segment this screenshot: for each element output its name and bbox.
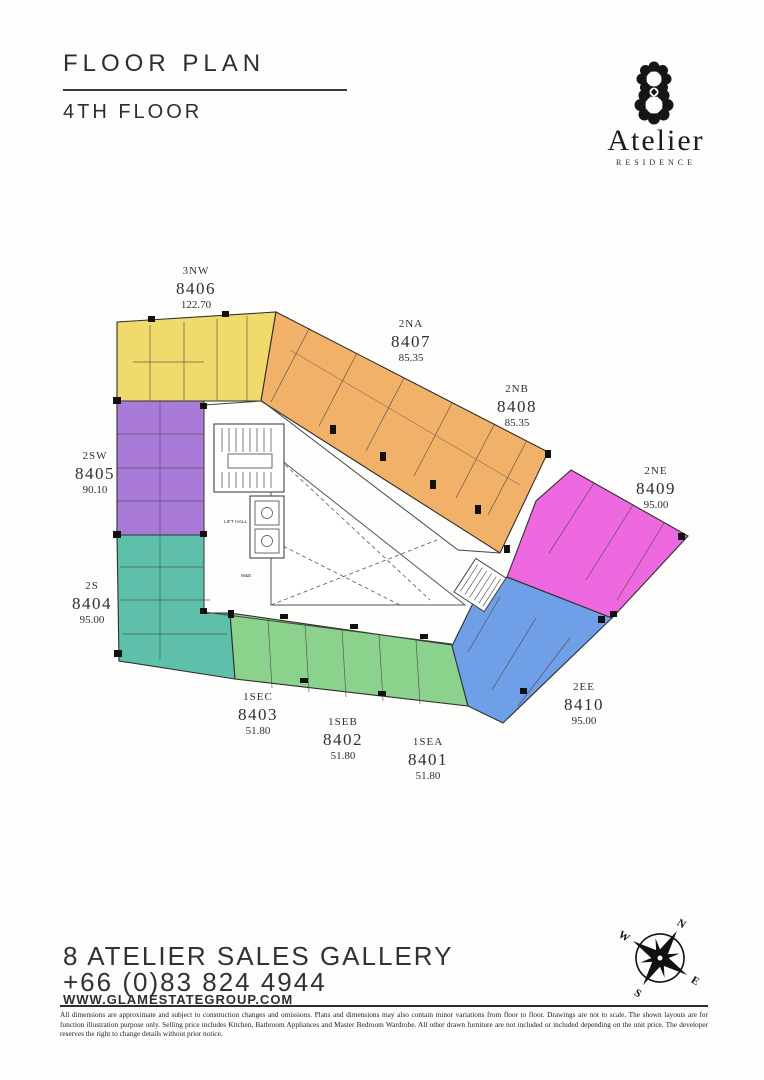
unit-area: 85.35 bbox=[497, 417, 537, 430]
unit-number: 8405 bbox=[75, 464, 115, 484]
unit-area: 95.00 bbox=[72, 614, 112, 627]
unit-number: 8408 bbox=[497, 397, 537, 417]
unit-label-8402: 1SEB 8402 51.80 bbox=[323, 716, 363, 763]
compass-n-label: N bbox=[675, 917, 688, 931]
unit-number: 8402 bbox=[323, 730, 363, 750]
unit-code: 2NB bbox=[497, 383, 537, 396]
floor-plan-page: FLOOR PLAN 4TH FLOOR Atelier RESIDENCE bbox=[0, 0, 764, 1080]
unit-area: 122.70 bbox=[176, 299, 216, 312]
unit-number: 8401 bbox=[408, 750, 448, 770]
footer-divider bbox=[60, 1005, 708, 1007]
unit-number: 8409 bbox=[636, 479, 676, 499]
unit-area: 51.80 bbox=[238, 725, 278, 738]
unit-label-8409: 2NE 8409 95.00 bbox=[636, 465, 676, 512]
unit-label-8403: 1SEC 8403 51.80 bbox=[238, 691, 278, 738]
mne-label: M&E bbox=[241, 573, 251, 579]
unit-area: 51.80 bbox=[323, 750, 363, 763]
stairwell bbox=[214, 424, 284, 492]
zone-3nw bbox=[117, 312, 276, 401]
unit-number: 8404 bbox=[72, 594, 112, 614]
compass-w-label: W bbox=[616, 929, 632, 945]
unit-area: 85.35 bbox=[391, 352, 431, 365]
floor-plan-drawing: LIFT HALL M&E bbox=[0, 0, 764, 1080]
compass-rose-icon: N E S W bbox=[594, 894, 723, 1023]
unit-number: 8410 bbox=[564, 695, 604, 715]
unit-code: 2NE bbox=[636, 465, 676, 478]
unit-area: 51.80 bbox=[408, 770, 448, 783]
unit-number: 8406 bbox=[176, 279, 216, 299]
unit-number: 8407 bbox=[391, 332, 431, 352]
zone-2s bbox=[117, 535, 235, 679]
unit-number: 8403 bbox=[238, 705, 278, 725]
unit-code: 1SEA bbox=[408, 736, 448, 749]
unit-label-8406: 3NW 8406 122.70 bbox=[176, 265, 216, 312]
disclaimer-text: All dimensions are approximate and subje… bbox=[60, 1010, 708, 1039]
unit-area: 95.00 bbox=[564, 715, 604, 728]
unit-code: 2SW bbox=[75, 450, 115, 463]
lift-hall-label: LIFT HALL bbox=[224, 519, 247, 525]
unit-code: 2S bbox=[72, 580, 112, 593]
unit-code: 1SEC bbox=[238, 691, 278, 704]
unit-label-8404: 2S 8404 95.00 bbox=[72, 580, 112, 627]
unit-label-8408: 2NB 8408 85.35 bbox=[497, 383, 537, 430]
unit-code: 2NA bbox=[391, 318, 431, 331]
unit-area: 90.10 bbox=[75, 484, 115, 497]
unit-code: 2EE bbox=[564, 681, 604, 694]
unit-label-8410: 2EE 8410 95.00 bbox=[564, 681, 604, 728]
lift-shaft bbox=[250, 496, 284, 558]
unit-code: 3NW bbox=[176, 265, 216, 278]
compass-s-label: S bbox=[632, 987, 644, 1000]
unit-label-8407: 2NA 8407 85.35 bbox=[391, 318, 431, 365]
unit-area: 95.00 bbox=[636, 499, 676, 512]
unit-label-8401: 1SEA 8401 51.80 bbox=[408, 736, 448, 783]
unit-label-8405: 2SW 8405 90.10 bbox=[75, 450, 115, 497]
unit-code: 1SEB bbox=[323, 716, 363, 729]
logo-8-icon bbox=[635, 62, 674, 125]
compass-e-label: E bbox=[689, 974, 702, 988]
zone-polygons bbox=[117, 312, 688, 723]
